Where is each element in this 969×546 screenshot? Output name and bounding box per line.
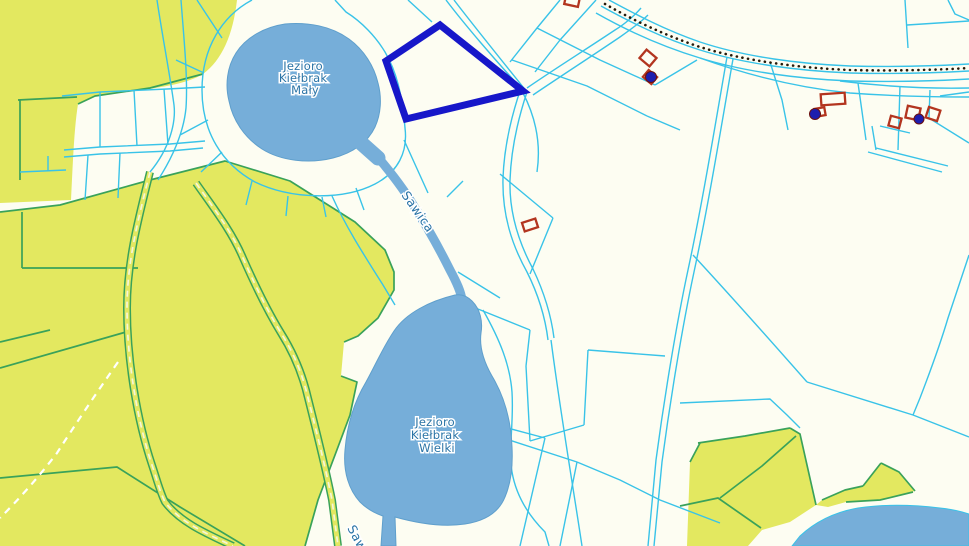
address-point: [646, 72, 657, 83]
map-canvas[interactable]: Jezioro Kiełbrak Mały Jezioro Kiełbrak W…: [0, 0, 969, 546]
map-viewport[interactable]: Jezioro Kiełbrak Mały Jezioro Kiełbrak W…: [0, 0, 969, 546]
address-point: [810, 109, 821, 120]
address-point: [914, 114, 924, 124]
